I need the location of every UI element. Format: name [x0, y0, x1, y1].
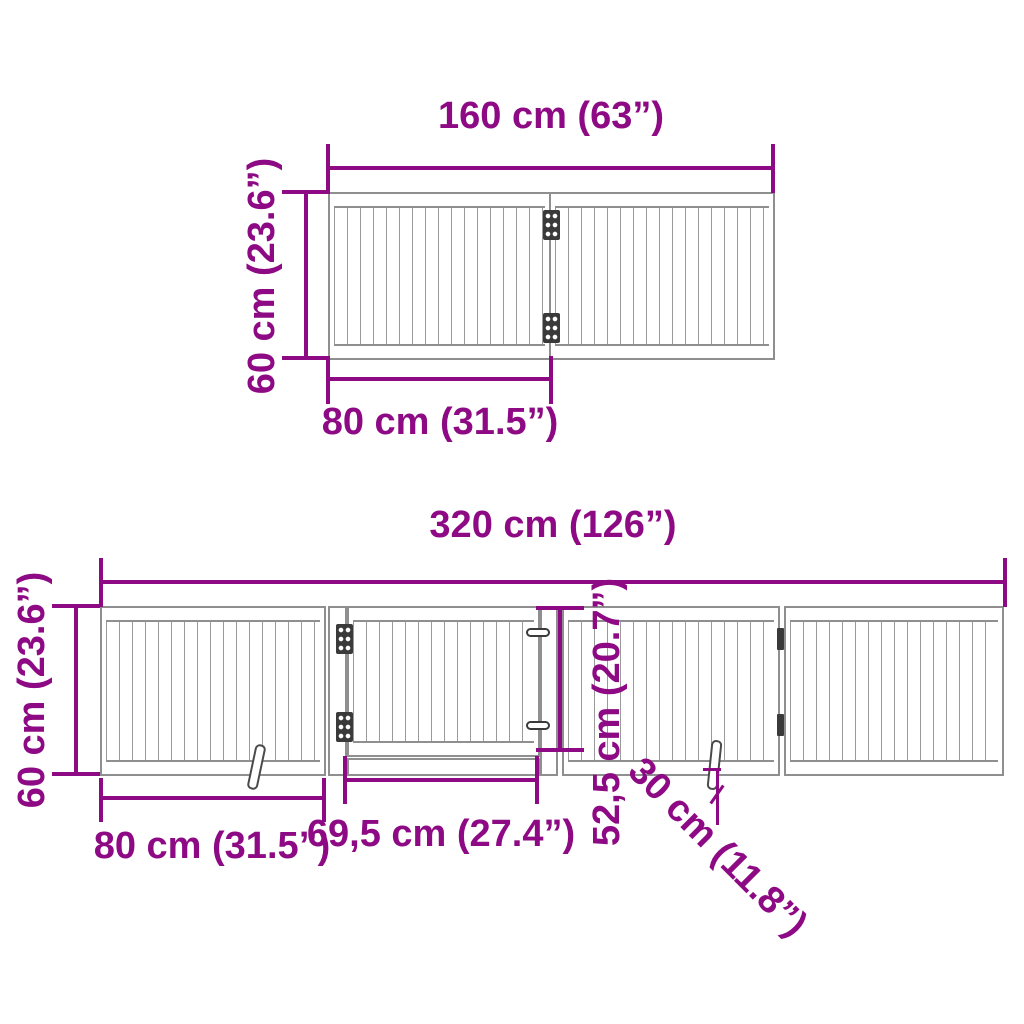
dimension-line — [343, 778, 539, 782]
dimension-line — [74, 604, 78, 776]
door-height-dimension-label: 52,5 cm (20.7”) — [587, 578, 629, 846]
dimension-line — [101, 580, 1006, 584]
dimension-line — [99, 796, 326, 800]
dimension-tick — [99, 778, 103, 822]
bottom-view-panel-width-dimension-label: 80 cm (31.5”) — [94, 826, 331, 868]
dimension-line — [558, 606, 562, 752]
bottom-view-width-dimension-label: 320 cm (126”) — [429, 505, 676, 547]
product-dimension-diagram: 160 cm (63”) 60 cm (23.6”) 80 cm (31.5”) — [0, 0, 1024, 1024]
bottom-view-dimensions: 320 cm (126”) 60 cm (23.6”) 80 cm (31.5”… — [0, 0, 1024, 1024]
bottom-view-height-dimension-label: 60 cm (23.6”) — [12, 572, 54, 809]
bottom-view-diagram: 320 cm (126”) 60 cm (23.6”) 80 cm (31.5”… — [0, 0, 1024, 1024]
door-width-dimension-label: 69,5 cm (27.4”) — [307, 814, 575, 856]
